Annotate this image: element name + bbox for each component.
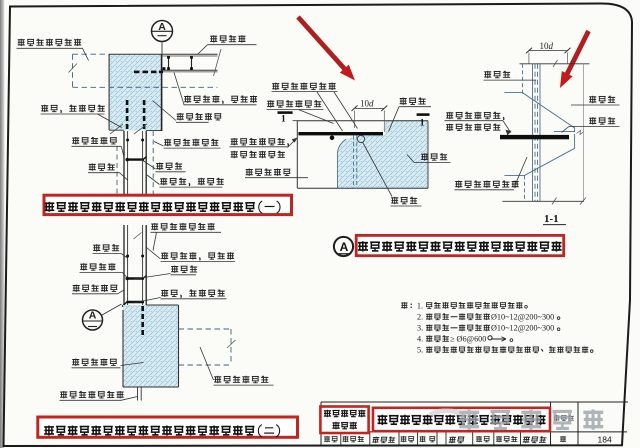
svg-text:1-1: 1-1 [544,213,559,225]
svg-text:Ø10~12@200~300: Ø10~12@200~300 [491,324,554,333]
svg-text:≥ Ø6@600: ≥ Ø6@600 [450,335,486,344]
svg-text:1: 1 [281,115,286,125]
svg-text:1: 1 [420,118,425,128]
svg-text:Ø10~12@200~300: Ø10~12@200~300 [491,313,554,322]
svg-text:2.: 2. [417,313,423,322]
svg-text:10d: 10d [540,41,554,51]
svg-text:10d: 10d [360,99,374,109]
svg-text:5.: 5. [417,346,423,355]
svg-text:3.: 3. [417,324,423,333]
svg-text:A: A [89,310,97,322]
svg-text:A: A [340,240,349,254]
svg-text:4.: 4. [417,335,423,344]
svg-text:184: 184 [598,434,612,444]
svg-text:1.: 1. [417,301,423,310]
svg-text:A: A [158,21,166,33]
